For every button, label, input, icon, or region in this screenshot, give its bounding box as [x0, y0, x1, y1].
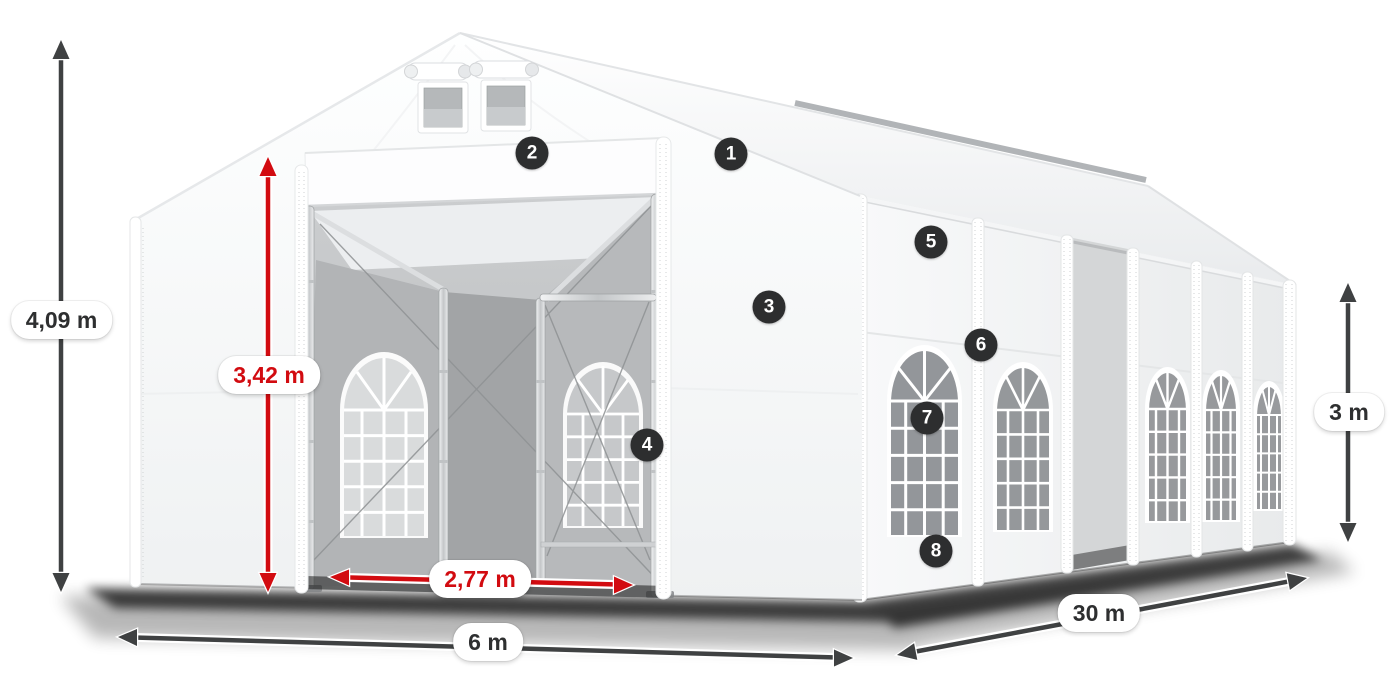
interior-window	[340, 352, 428, 538]
marker-4: 4	[631, 429, 664, 462]
marker-8: 8	[920, 535, 953, 568]
marker-3: 3	[753, 291, 786, 324]
side-door-opening	[1066, 237, 1130, 571]
dimension-label-side-height: 3 m	[1314, 393, 1384, 431]
interior-passage	[444, 292, 541, 580]
dimension-label-entrance-height: 3,42 m	[218, 356, 320, 394]
entrance-opening	[298, 194, 674, 598]
marker-2: 2	[516, 137, 549, 170]
marker-5: 5	[915, 226, 948, 259]
tent-illustration	[0, 0, 1400, 700]
dimension-label-length: 30 m	[1058, 594, 1140, 632]
tent-dimension-diagram: 4,09 m 3,42 m 2,77 m 6 m 30 m 3 m 1 2 3 …	[0, 0, 1400, 700]
side-window	[1145, 367, 1190, 523]
side-window	[1253, 381, 1285, 511]
side-window	[993, 362, 1053, 532]
marker-7: 7	[911, 402, 944, 435]
side-window	[887, 345, 962, 537]
dimension-label-entrance-width: 2,77 m	[429, 560, 531, 598]
side-window	[1202, 370, 1240, 522]
dimension-label-front-width: 6 m	[453, 623, 523, 661]
front-left-corner-pole	[130, 217, 141, 587]
marker-1: 1	[715, 138, 748, 171]
dimension-label-total-height: 4,09 m	[11, 301, 113, 339]
inner-door-threshold	[541, 542, 657, 547]
marker-6: 6	[965, 329, 998, 362]
